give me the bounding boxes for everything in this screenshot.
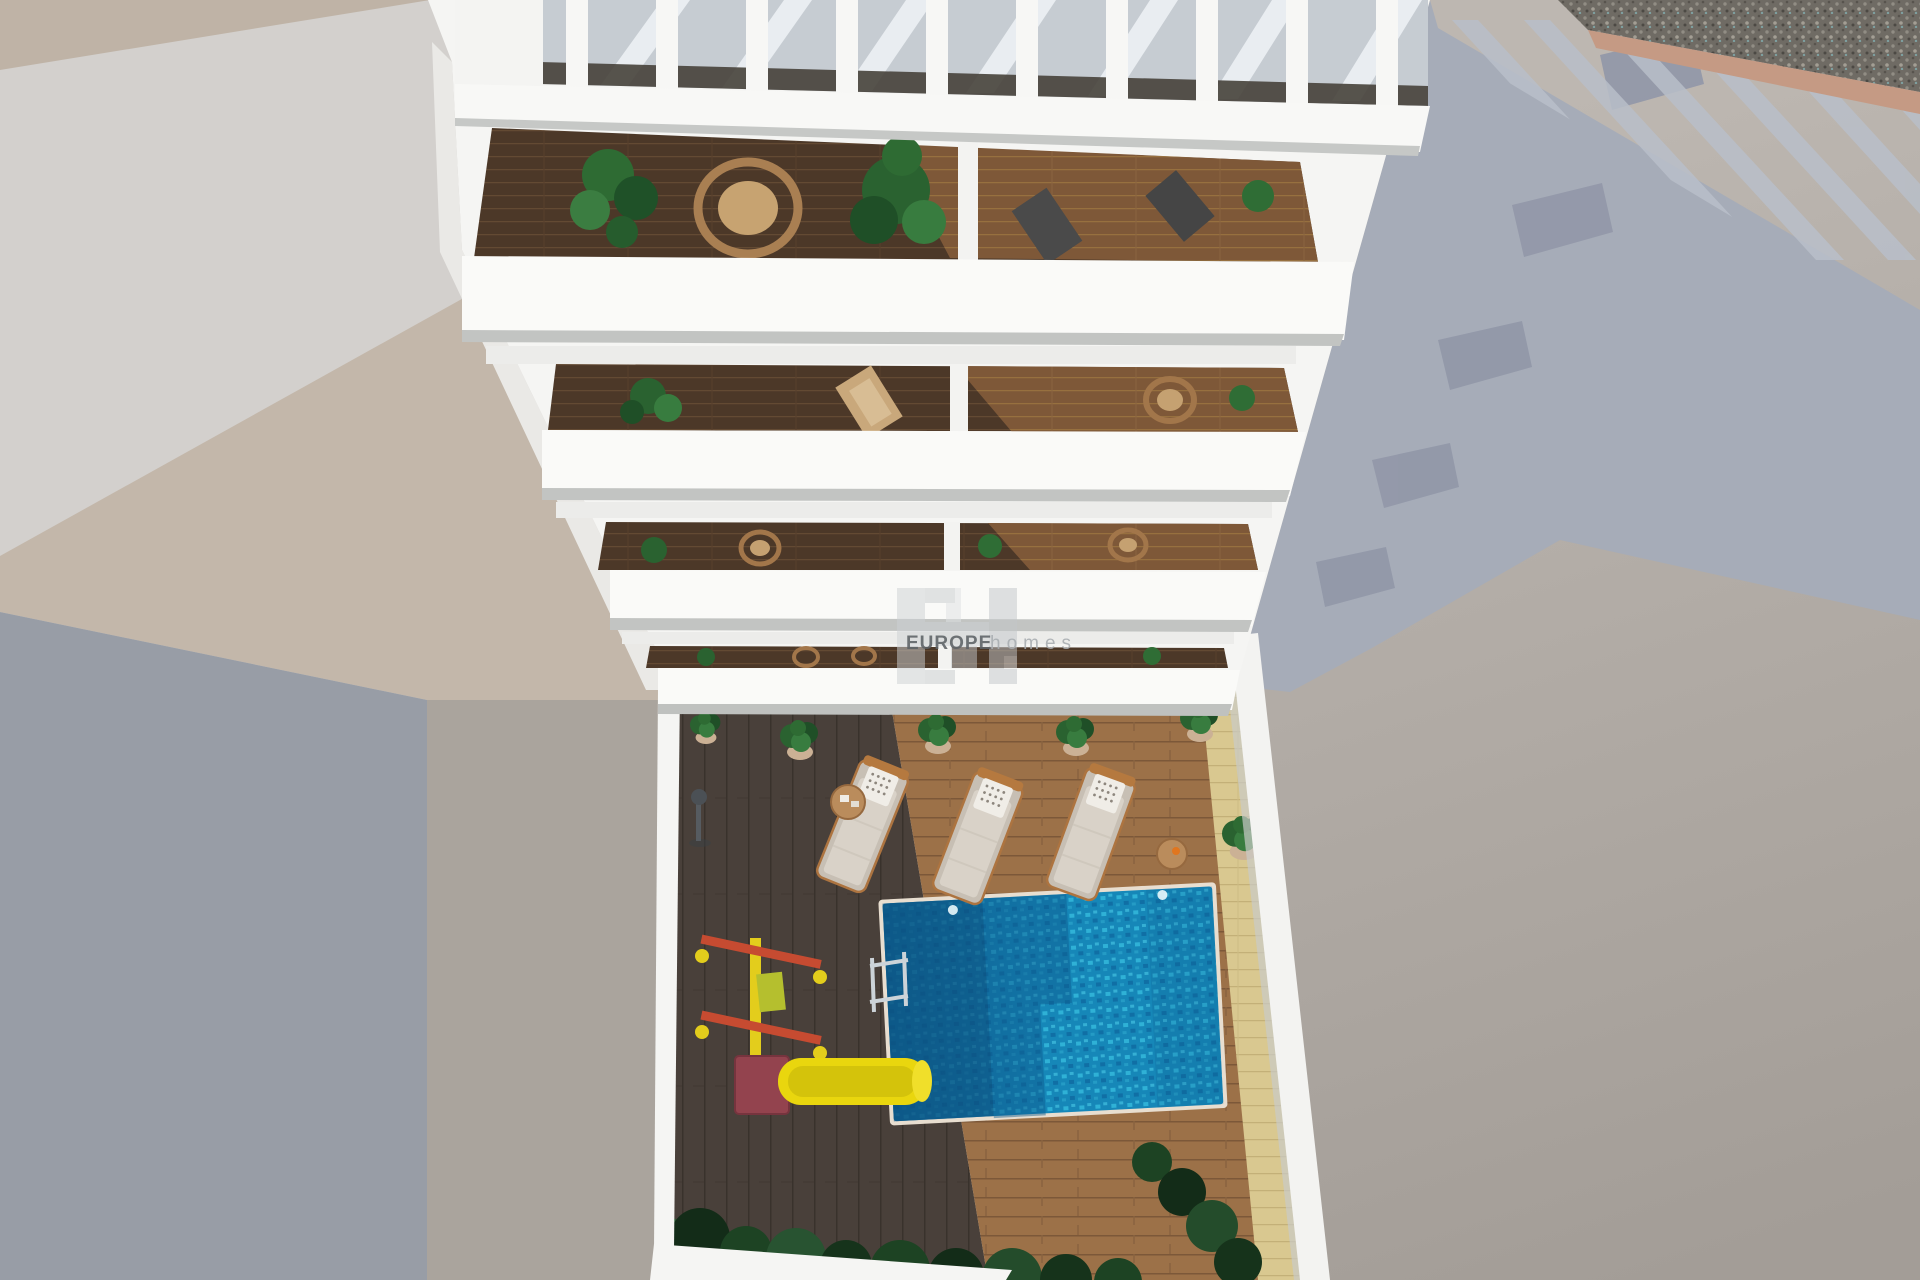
plant-2r (1229, 385, 1255, 411)
plant-4b (1143, 647, 1161, 665)
wall-face-1 (486, 346, 1296, 364)
balcony-band-1 (462, 256, 1354, 346)
ground-shadow-left (0, 612, 427, 1280)
render-image: EUROPE homes (0, 0, 1920, 1280)
plant-3l (641, 537, 667, 563)
aerial-render: EUROPE homes (0, 0, 1920, 1280)
terrace-2 (548, 364, 1298, 439)
divider-wall-2 (950, 364, 968, 432)
side-table-right (1157, 839, 1187, 869)
divider-wall-1 (958, 130, 978, 262)
balcony-band-2 (542, 430, 1306, 502)
plant-3m (978, 534, 1002, 558)
terrace-3 (598, 522, 1258, 570)
plant-1r (1242, 180, 1274, 212)
plant-4a (697, 648, 715, 666)
warm-strip-left (427, 700, 672, 1280)
side-table-left (831, 785, 865, 819)
courtyard (662, 636, 1324, 1280)
pergola-corner-block (455, 0, 543, 88)
watermark-brand-light: homes (990, 633, 1077, 654)
watermark-brand-bold: EUROPE (906, 633, 992, 654)
divider-wall-3 (944, 522, 960, 570)
wall-face-2 (556, 502, 1272, 518)
